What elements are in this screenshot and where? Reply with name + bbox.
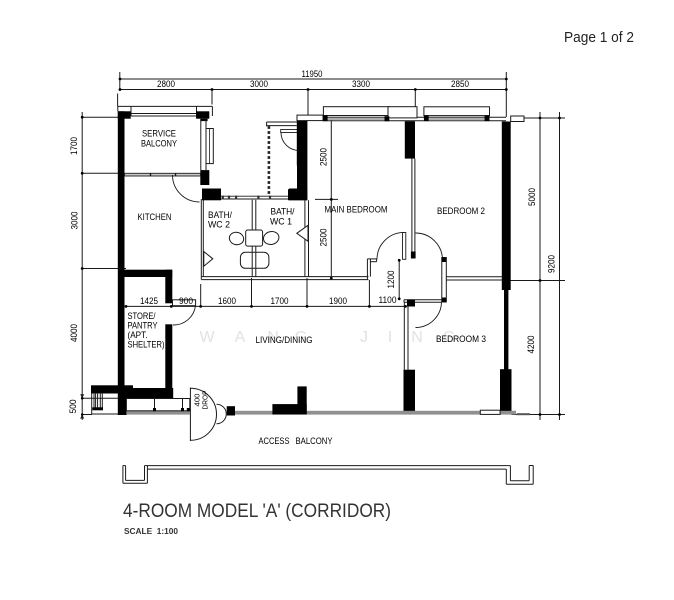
svg-text:1900: 1900 (329, 296, 347, 306)
svg-text:PANTRY: PANTRY (128, 321, 158, 331)
svg-text:1700: 1700 (69, 137, 79, 155)
svg-text:BATH/: BATH/ (271, 207, 296, 217)
svg-text:1600: 1600 (218, 296, 236, 306)
svg-text:1700: 1700 (271, 296, 289, 306)
svg-text:SCALE 1:100: SCALE 1:100 (124, 526, 178, 536)
svg-text:3000: 3000 (250, 79, 268, 89)
svg-text:WC 1: WC 1 (270, 217, 292, 227)
svg-text:SHELTER): SHELTER) (128, 340, 165, 350)
svg-text:I: I (388, 329, 392, 346)
svg-text:MAIN BEDROOM: MAIN BEDROOM (325, 205, 388, 216)
svg-text:1200: 1200 (386, 271, 396, 289)
svg-text:BEDROOM 3: BEDROOM 3 (436, 334, 486, 345)
svg-text:2800: 2800 (157, 79, 175, 89)
svg-text:5000: 5000 (527, 188, 537, 206)
svg-text:BALCONY: BALCONY (141, 139, 177, 149)
svg-text:W: W (199, 329, 215, 346)
svg-text:DROP: DROP (201, 391, 210, 410)
svg-text:BALCONY: BALCONY (296, 436, 333, 446)
svg-text:3000: 3000 (70, 212, 80, 230)
svg-text:BATH/: BATH/ (208, 210, 233, 220)
svg-text:9200: 9200 (547, 255, 557, 273)
svg-text:4200: 4200 (526, 336, 536, 354)
svg-text:4-ROOM MODEL 'A' (CORRIDOR): 4-ROOM MODEL 'A' (CORRIDOR) (123, 501, 391, 522)
svg-text:2850: 2850 (451, 79, 469, 89)
svg-text:1100: 1100 (379, 295, 397, 305)
svg-text:(APT.: (APT. (128, 330, 148, 340)
svg-text:Page 1 of 2: Page 1 of 2 (564, 29, 634, 46)
svg-text:900: 900 (179, 296, 193, 306)
svg-text:4000: 4000 (69, 324, 79, 342)
svg-text:11950: 11950 (302, 69, 323, 80)
svg-text:STORE/: STORE/ (128, 311, 156, 321)
svg-text:J: J (360, 329, 368, 346)
svg-text:2500: 2500 (319, 148, 329, 166)
svg-text:1425: 1425 (140, 296, 158, 306)
svg-text:2500: 2500 (319, 229, 329, 247)
svg-text:SERVICE: SERVICE (142, 129, 176, 139)
svg-text:ACCESS: ACCESS (259, 436, 290, 446)
svg-text:N: N (411, 329, 423, 346)
svg-text:A: A (235, 329, 246, 346)
svg-text:500: 500 (68, 400, 78, 414)
svg-text:3300: 3300 (352, 79, 370, 89)
svg-text:LIVING/DINING: LIVING/DINING (256, 335, 313, 346)
svg-text:WC 2: WC 2 (208, 220, 230, 230)
svg-text:BEDROOM 2: BEDROOM 2 (437, 206, 485, 217)
svg-text:KITCHEN: KITCHEN (138, 212, 172, 223)
